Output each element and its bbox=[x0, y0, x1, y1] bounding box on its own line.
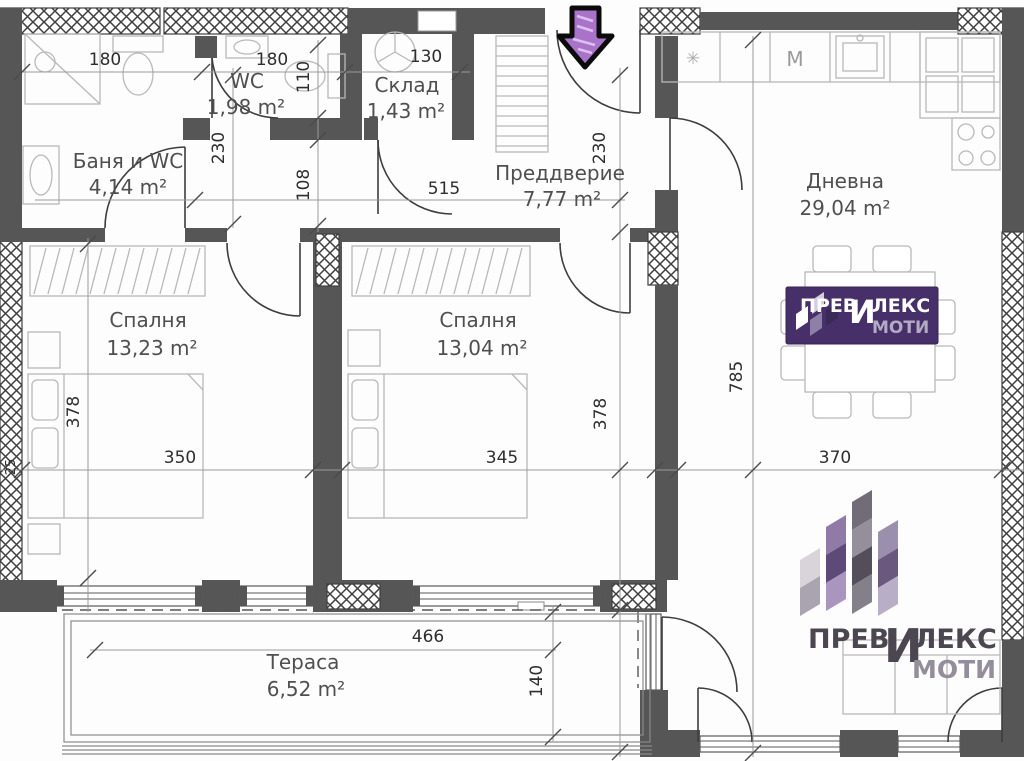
pillow bbox=[352, 380, 378, 420]
insulated-pier-3 bbox=[612, 584, 656, 609]
chair bbox=[781, 346, 807, 380]
logo-text-leks: ЛЕКС bbox=[872, 295, 930, 317]
wall-right-lower bbox=[1002, 640, 1024, 757]
room-label-storage: Склад bbox=[375, 73, 440, 97]
room-area-bathroom: 4,14 m² bbox=[89, 175, 167, 199]
dim-terrace-depth: 140 bbox=[527, 665, 547, 697]
insulated-pier-2 bbox=[327, 584, 380, 609]
dim-wc-width: 180 bbox=[256, 50, 288, 70]
nightstand bbox=[348, 330, 380, 366]
brand-watermark-small: ПРЕВ И ЛЕКС МОТИ bbox=[786, 287, 938, 344]
dim-bedroom2-width: 345 bbox=[486, 448, 518, 468]
dim-bedroom1-height: 378 bbox=[64, 396, 84, 428]
wall-top-living bbox=[700, 12, 958, 30]
bed-2 bbox=[348, 374, 527, 518]
bed-1 bbox=[28, 374, 203, 518]
wall-living-bottom-mid bbox=[840, 730, 898, 757]
room-label-living: Дневна bbox=[806, 169, 884, 193]
terrace-railing bbox=[62, 746, 652, 754]
dim-bath-width: 180 bbox=[89, 50, 121, 70]
dim-bedroom1-width: 350 bbox=[164, 448, 196, 468]
dim-living-width: 370 bbox=[819, 448, 851, 468]
storage-door bbox=[378, 140, 452, 214]
floor-plan: ✳ M bbox=[0, 0, 1024, 761]
wall-hall-living-lower bbox=[655, 190, 678, 232]
wall-bottom-pier-1 bbox=[202, 580, 240, 612]
wall-living-bottom-left bbox=[668, 730, 700, 757]
logo-chevron-icon bbox=[800, 490, 898, 616]
terrace-door bbox=[662, 617, 737, 692]
bedroom1-door bbox=[227, 243, 300, 316]
room-label-terrace: Тераса bbox=[266, 650, 340, 674]
pillow bbox=[352, 428, 378, 468]
toilet-1 bbox=[123, 53, 153, 95]
dim-living-height: 785 bbox=[727, 361, 747, 393]
room-area-bedroom1: 13,23 m² bbox=[106, 336, 197, 360]
room-area-wc: 1,98 m² bbox=[207, 95, 285, 119]
wall-hall-living-upper bbox=[655, 36, 678, 118]
living-room-door bbox=[670, 118, 742, 190]
wall-right-upper bbox=[1002, 8, 1024, 232]
insulated-wall-left bbox=[0, 232, 22, 582]
nightstand bbox=[28, 524, 60, 554]
wardrobe-1 bbox=[30, 246, 205, 296]
insulated-wall-top-left bbox=[0, 8, 160, 34]
wall-storage-left bbox=[340, 34, 362, 140]
room-label-wc: WC bbox=[230, 69, 264, 93]
column-between-bedrooms bbox=[316, 234, 339, 286]
room-area-hall: 7,77 m² bbox=[523, 187, 601, 211]
terrace-structure bbox=[62, 610, 652, 754]
insulated-wall-top-mid bbox=[164, 8, 348, 34]
dim-corridor-height: 108 bbox=[294, 169, 314, 201]
furniture-hall bbox=[496, 36, 548, 152]
logo-text-moti: МОТИ bbox=[872, 318, 929, 338]
pillow bbox=[32, 428, 58, 468]
entrance-arrow-icon bbox=[559, 8, 612, 67]
dim-hall-height: 230 bbox=[590, 132, 610, 164]
windows bbox=[57, 586, 960, 752]
dim-wc-height: 110 bbox=[294, 61, 314, 93]
furniture-bedroom2 bbox=[348, 246, 530, 518]
window-bedroom2 bbox=[413, 586, 600, 610]
fridge-icon: ✳ bbox=[686, 49, 700, 69]
wall-corner-bottom-left bbox=[0, 580, 57, 612]
wall-hall-bottom-1 bbox=[185, 228, 227, 242]
wall-living-west-lower bbox=[640, 690, 668, 757]
dim-wall-thickness: 25 bbox=[4, 459, 19, 476]
logo-text-prev: ПРЕВ bbox=[808, 624, 889, 655]
logo-text-moti: МОТИ bbox=[912, 655, 996, 684]
floor-plan-page: ✳ M bbox=[0, 0, 1024, 761]
insulated-wall-right bbox=[1002, 232, 1024, 640]
interior-walls bbox=[0, 34, 678, 580]
insulated-wall-entry-right bbox=[640, 8, 700, 34]
entrance-arrow bbox=[559, 8, 612, 67]
hall-closet bbox=[496, 36, 548, 152]
wall-bath-wc-stub bbox=[195, 36, 217, 58]
washing-machine-label: M bbox=[786, 47, 803, 71]
pillow bbox=[32, 380, 58, 420]
nightstand bbox=[28, 332, 60, 368]
kitchen-corner-unit bbox=[920, 32, 1000, 118]
furniture-bedroom1 bbox=[28, 246, 205, 554]
chair bbox=[813, 392, 851, 418]
wall-bath-bottom bbox=[0, 228, 105, 242]
window-living-south-b bbox=[898, 736, 960, 752]
column-living-west bbox=[648, 232, 678, 285]
terrace-outline bbox=[64, 614, 650, 742]
room-label-bedroom1: Спалня bbox=[109, 308, 186, 332]
dim-bath-height: 230 bbox=[209, 132, 229, 164]
room-area-living: 29,04 m² bbox=[799, 196, 890, 220]
window-bedroom1-a bbox=[57, 586, 202, 606]
furniture-kitchen: ✳ M bbox=[662, 32, 1000, 170]
dim-hall-width: 515 bbox=[428, 179, 460, 199]
window-living-west bbox=[646, 614, 661, 690]
stove bbox=[952, 118, 1000, 170]
window-living-south-a bbox=[700, 736, 840, 752]
wall-living-bottom-right bbox=[960, 730, 1002, 757]
dim-terrace-width: 466 bbox=[412, 627, 444, 647]
wall-wc-corner bbox=[183, 118, 210, 140]
kitchen-counter bbox=[662, 32, 1000, 82]
room-area-bedroom2: 13,04 m² bbox=[436, 336, 527, 360]
logo-text-leks: ЛЕКС bbox=[914, 624, 997, 655]
chair bbox=[873, 392, 911, 418]
window-bedroom1-b bbox=[240, 586, 313, 606]
vent-window bbox=[418, 11, 456, 31]
chair bbox=[813, 246, 851, 272]
room-label-hall: Преддверие bbox=[495, 161, 625, 185]
room-label-bedroom2: Спалня bbox=[439, 308, 516, 332]
kitchen-sink bbox=[836, 35, 884, 78]
brand-watermark-large: ПРЕВ И ЛЕКС МОТИ bbox=[800, 490, 997, 684]
room-area-storage: 1,43 m² bbox=[367, 99, 445, 123]
room-area-terrace: 6,52 m² bbox=[267, 677, 345, 701]
room-label-bathroom: Баня и WC bbox=[73, 149, 184, 173]
chair bbox=[873, 246, 911, 272]
french-door-left bbox=[698, 688, 752, 742]
dim-storage-width: 130 bbox=[410, 47, 442, 67]
wall-storage-right bbox=[452, 34, 474, 140]
wall-bed2-living bbox=[655, 285, 678, 580]
window-handle bbox=[518, 602, 544, 610]
dim-bedroom2-height: 378 bbox=[591, 398, 611, 430]
shower-head-icon bbox=[35, 52, 55, 72]
wall-left-upper bbox=[0, 8, 22, 232]
